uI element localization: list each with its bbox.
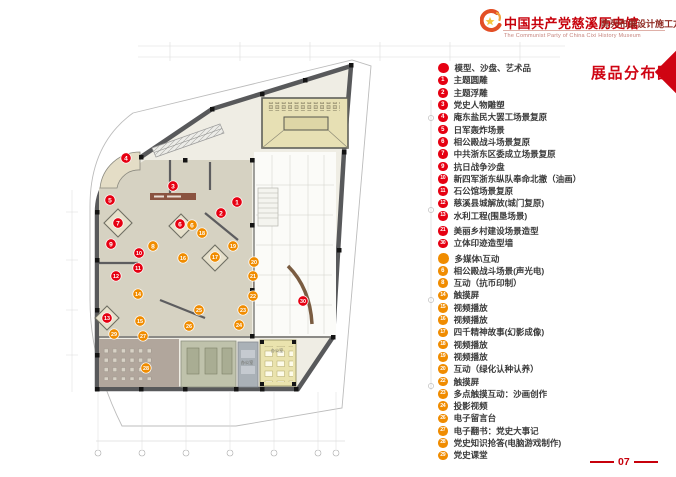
svg-text:3: 3 (171, 183, 175, 190)
legend-item-label: 相公殿战斗场景复原 (454, 136, 531, 148)
legend-item-number: 14 (438, 291, 448, 301)
legend-item-number: 30 (438, 239, 448, 249)
svg-text:20: 20 (251, 260, 257, 266)
legend-item-number: 22 (438, 377, 448, 387)
svg-text:15: 15 (137, 319, 143, 325)
legend-item: 10新四军浙东纵队奉命北撤（油画） (438, 173, 670, 185)
legend-color-dot (438, 253, 449, 264)
plan-marker: 6 (187, 220, 197, 230)
legend-item-label: 视频播放 (454, 351, 488, 363)
plan-marker: 29 (109, 329, 119, 339)
legend-item: 9抗日战争沙盘 (438, 160, 670, 172)
legend-item: 15视频播放 (438, 302, 670, 314)
plan-marker: 9 (106, 239, 116, 249)
party-emblem-logo (480, 9, 502, 35)
room-label: 办公室 (241, 359, 254, 366)
svg-text:16: 16 (180, 256, 186, 262)
plan-marker: 1 (232, 197, 242, 207)
svg-text:21: 21 (250, 274, 256, 280)
legend-item-number: 13 (438, 211, 448, 221)
plan-marker: 11 (133, 263, 143, 273)
legend-item: 28党史知识抢答(电脑游戏制作) (438, 437, 670, 449)
legend-item-number: 4 (438, 113, 448, 123)
legend-item-number: 26 (438, 414, 448, 424)
legend-item-label: 相公殿战斗场景(声光电) (454, 265, 545, 277)
svg-text:22: 22 (250, 294, 256, 300)
svg-text:4: 4 (124, 155, 128, 162)
plan-marker: 18 (197, 228, 207, 238)
legend-item-number: 24 (438, 401, 448, 411)
legend-item-number: 7 (438, 149, 448, 159)
legend-item: 26电子留言台 (438, 412, 670, 424)
legend-item-label: 日军轰炸场景 (454, 124, 505, 136)
plan-marker: 26 (184, 321, 194, 331)
legend-item-label: 庵东盐民大罢工场景复原 (454, 111, 548, 123)
svg-text:28: 28 (143, 366, 149, 372)
legend-item: 6相公殿战斗场景复原 (438, 136, 670, 148)
legend-item: 11石公馆场景复原 (438, 185, 670, 197)
legend-item: 30立体印迹造型墙 (438, 237, 670, 249)
plan-marker: 3 (168, 181, 178, 191)
legend-item: 22触摸屏 (438, 375, 670, 387)
plan-marker: 7 (113, 218, 123, 228)
legend-item-label: 党史知识抢答(电脑游戏制作) (454, 437, 562, 449)
legend-item: 12慈溪县城解放(城门复原) (438, 197, 670, 209)
exhibit-legend: 模型、沙盘、艺术品1主题圆雕2主题浮雕3党史人物雕塑4庵东盐民大罢工场景复原5日… (438, 62, 670, 462)
legend-item-number: 8 (438, 278, 448, 288)
conference-room (262, 98, 348, 148)
svg-text:17: 17 (212, 255, 218, 261)
plan-marker: 4 (121, 153, 131, 163)
svg-text:19: 19 (230, 244, 236, 250)
legend-item-label: 党史人物雕塑 (454, 99, 505, 111)
plan-marker: 22 (248, 291, 258, 301)
legend-item-label: 互动（绿化认种认养） (454, 363, 539, 375)
plan-marker: 14 (133, 289, 143, 299)
legend-item-label: 党史课堂 (454, 449, 488, 461)
svg-text:30: 30 (300, 299, 306, 305)
legend-item-label: 视频播放 (454, 302, 488, 314)
svg-text:13: 13 (104, 316, 110, 322)
svg-text:24: 24 (236, 323, 242, 329)
legend-item-number: 16 (438, 315, 448, 325)
legend-item: 27电子翻书：党史大事记 (438, 425, 670, 437)
plan-marker: 15 (135, 316, 145, 326)
page-number: 07 (590, 456, 658, 468)
svg-text:10: 10 (136, 251, 142, 257)
plan-marker: 21 (248, 271, 258, 281)
legend-item-label: 中共浙东区委成立场景复原 (454, 148, 556, 160)
plan-marker: 30 (298, 296, 308, 306)
legend-item-label: 主题圆雕 (454, 74, 488, 86)
svg-text:8: 8 (151, 243, 155, 250)
svg-text:26: 26 (186, 324, 192, 330)
legend-item-label: 电子翻书：党史大事记 (454, 425, 539, 437)
legend-item: 19视频播放 (438, 351, 670, 363)
svg-text:12: 12 (113, 274, 119, 280)
svg-text:9: 9 (109, 241, 113, 248)
legend-item-number: 5 (438, 125, 448, 135)
legend-item-number: 19 (438, 352, 448, 362)
legend-item-number: 21 (438, 226, 448, 236)
legend-item: 7中共浙东区委成立场景复原 (438, 148, 670, 160)
legend-item-number: 12 (438, 199, 448, 209)
legend-item-label: 触摸屏 (454, 376, 480, 388)
plan-marker: 16 (178, 253, 188, 263)
legend-item-number: 9 (438, 162, 448, 172)
legend-item-label: 互动（抗币印制） (454, 277, 522, 289)
page-number-rule-right (634, 461, 658, 463)
legend-item-number: 17 (438, 328, 448, 338)
legend-item-number: 10 (438, 174, 448, 184)
legend-item: 8互动（抗币印制） (438, 277, 670, 289)
svg-text:7: 7 (116, 220, 120, 227)
svg-text:29: 29 (111, 332, 117, 338)
legend-item-label: 抗日战争沙盘 (454, 161, 505, 173)
plan-marker: 5 (105, 195, 115, 205)
dimension-line-left (66, 190, 78, 392)
legend-item: 2主题浮雕 (438, 87, 670, 99)
plan-marker: 23 (238, 305, 248, 315)
legend-item-label: 美丽乡村建设场景造型 (454, 225, 539, 237)
svg-text:14: 14 (135, 292, 141, 298)
legend-item-label: 电子留言台 (454, 412, 497, 424)
plan-marker: 6 (175, 219, 185, 229)
plan-marker: 8 (148, 241, 158, 251)
legend-item: 24投影视频 (438, 400, 670, 412)
legend-item: 3党史人物雕塑 (438, 99, 670, 111)
legend-item: 14触摸屏 (438, 289, 670, 301)
service-zone (254, 152, 336, 336)
svg-text:6: 6 (178, 221, 182, 228)
page-number-rule-left (590, 461, 614, 463)
legend-item: 4庵东盐民大罢工场景复原 (438, 111, 670, 123)
legend-item: 5日军轰炸场景 (438, 123, 670, 135)
plan-marker: 12 (111, 271, 121, 281)
plan-marker: 13 (102, 313, 112, 323)
legend-color-dot (438, 63, 449, 74)
legend-item: 17四千精神故事(幻影成像) (438, 326, 670, 338)
legend-item-label: 投影视频 (454, 400, 488, 412)
plan-marker: 17 (210, 252, 220, 262)
header: 中国共产党慈溪历史馆 陈列布展设计施工方案 The Communist Part… (0, 0, 676, 48)
legend-section-header: 模型、沙盘、艺术品 (438, 62, 670, 74)
legend-item-number: 6 (438, 266, 448, 276)
plan-marker: 24 (234, 320, 244, 330)
legend-item: 21美丽乡村建设场景造型 (438, 225, 670, 237)
legend-item-label: 主题浮雕 (454, 87, 488, 99)
legend-section-label: 模型、沙盘、艺术品 (455, 62, 532, 74)
site-subtitle: 陈列布展设计施工方案 (601, 17, 676, 30)
legend-item-number: 11 (438, 186, 448, 196)
legend-item-label: 视频播放 (454, 314, 488, 326)
dimension-line-right (428, 100, 433, 390)
legend-item: 16视频播放 (438, 314, 670, 326)
page-number-value: 07 (618, 456, 630, 468)
svg-text:27: 27 (140, 334, 146, 340)
plan-marker: 20 (249, 257, 259, 267)
legend-item-number: 15 (438, 303, 448, 313)
svg-text:25: 25 (196, 308, 202, 314)
legend-item-number: 18 (438, 340, 448, 350)
legend-item-number: 6 (438, 137, 448, 147)
svg-text:11: 11 (135, 266, 141, 272)
legend-item-number: 1 (438, 76, 448, 86)
site-title-en: The Communist Party of China Cixi Histor… (504, 33, 641, 39)
legend-item-label: 慈溪县城解放(城门复原) (454, 197, 545, 209)
plan-marker: 2 (216, 208, 226, 218)
svg-text:18: 18 (199, 231, 205, 237)
legend-item-number: 27 (438, 426, 448, 436)
svg-text:6: 6 (190, 222, 194, 229)
legend-item-label: 水利工程(围垦场景) (454, 210, 528, 222)
plan-marker: 27 (138, 331, 148, 341)
legend-item: 18视频播放 (438, 339, 670, 351)
legend-item: 13水利工程(围垦场景) (438, 210, 670, 222)
legend-item-label: 四千精神故事(幻影成像) (454, 326, 545, 338)
svg-text:5: 5 (108, 197, 112, 204)
legend-item-number: 20 (438, 364, 448, 374)
legend-item-number: 23 (438, 389, 448, 399)
legend-item: 23多点触摸互动：沙画创作 (438, 388, 670, 400)
legend-item-number: 3 (438, 100, 448, 110)
plan-marker: 10 (134, 248, 144, 258)
legend-item: 20互动（绿化认种认养） (438, 363, 670, 375)
legend-item: 1主题圆雕 (438, 74, 670, 86)
svg-text:2: 2 (219, 210, 223, 217)
legend-item-label: 多点触摸互动：沙画创作 (454, 388, 548, 400)
legend-item-label: 视频播放 (454, 339, 488, 351)
plan-marker: 25 (194, 305, 204, 315)
plan-marker: 28 (141, 363, 151, 373)
legend-item-number: 29 (438, 451, 448, 461)
legend-item: 6相公殿战斗场景(声光电) (438, 265, 670, 277)
legend-section-label: 多媒体\互动 (455, 253, 500, 265)
legend-item-label: 触摸屏 (454, 289, 480, 301)
plan-marker: 19 (228, 241, 238, 251)
room-label: 办公室 (271, 347, 284, 354)
header-underline (503, 30, 665, 31)
legend-item-label: 立体印迹造型墙 (454, 237, 514, 249)
legend-section-header: 多媒体\互动 (438, 252, 670, 264)
legend-item-label: 新四军浙东纵队奉命北撤（油画） (454, 173, 582, 185)
svg-text:1: 1 (235, 199, 239, 206)
legend-item-label: 石公馆场景复原 (454, 185, 514, 197)
svg-text:23: 23 (240, 308, 246, 314)
legend-item-number: 2 (438, 88, 448, 98)
legend-item-number: 28 (438, 438, 448, 448)
